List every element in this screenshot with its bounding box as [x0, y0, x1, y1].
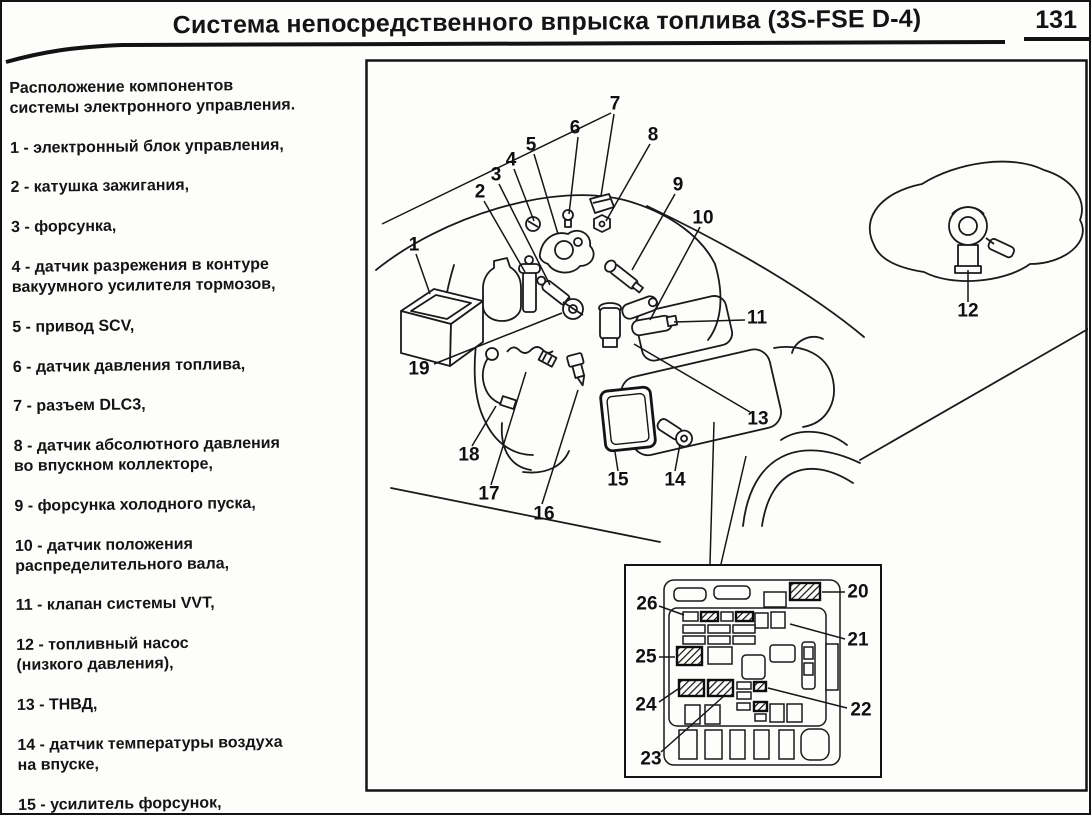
- callout-23: 23: [640, 749, 661, 770]
- relay-24-hatched: [679, 680, 704, 696]
- legend-item-3: 3 - форсунка,: [11, 214, 363, 238]
- callout-16: 16: [533, 504, 554, 525]
- legend-item-5: 5 - привод SCV,: [12, 313, 364, 337]
- legend-item-7: 7 - разъем DLC3,: [13, 393, 365, 417]
- callout-21: 21: [847, 630, 869, 651]
- scv-actuator-icon: [540, 231, 594, 273]
- fuse-26-target: [701, 612, 718, 621]
- legend-item-9: 9 - форсунка холодного пуска,: [14, 493, 366, 517]
- car-body-outline: [743, 329, 1088, 526]
- o2-sensor-icon: [507, 347, 557, 367]
- callout-2: 2: [475, 182, 486, 203]
- legend-item-6: 6 - датчик давления топлива,: [13, 353, 365, 377]
- legend-heading: Расположение компонентов системы электро…: [9, 75, 361, 119]
- fuse-box: [664, 580, 840, 765]
- manual-page: Система непосредственного впрыска топлив…: [0, 0, 1091, 815]
- callout-18: 18: [458, 445, 479, 466]
- legend-item-14: 14 - датчик температуры воздуха на впуск…: [17, 731, 369, 775]
- callout-15: 15: [607, 470, 629, 491]
- coolant-temp-sensor-icon: [567, 353, 590, 388]
- page-number: 131: [1035, 6, 1077, 35]
- fuel-pressure-sensor-icon: [563, 210, 573, 227]
- callout-12: 12: [957, 301, 978, 322]
- callout-11: 11: [747, 308, 768, 329]
- callout-8: 8: [648, 125, 659, 146]
- relay-20-hatched: [790, 583, 820, 600]
- callout-25: 25: [635, 647, 657, 668]
- callout-7: 7: [610, 94, 621, 115]
- callout-3: 3: [491, 165, 502, 186]
- callout-1: 1: [409, 235, 420, 256]
- fuse-21-target: [755, 613, 768, 628]
- callout-17: 17: [478, 484, 499, 505]
- legend-item-8: 8 - датчик абсолютного давления во впуск…: [14, 433, 366, 477]
- inset-funnel: [710, 422, 746, 564]
- cold-start-injector-icon: [603, 258, 645, 295]
- legend-item-12: 12 - топливный насос (низкого давления),: [16, 632, 368, 676]
- legend-item-11: 11 - клапан системы VVT,: [16, 592, 368, 616]
- fuse-box-inset: [625, 565, 881, 777]
- ecu-box: [401, 289, 483, 366]
- relay-23-hatched: [708, 680, 733, 696]
- dlc3-connector-icon: [590, 194, 614, 213]
- legend-item-15: 15 - усилитель форсунок,: [18, 791, 370, 815]
- callout-5: 5: [526, 135, 537, 156]
- callout-22: 22: [850, 700, 871, 721]
- component-location-diagram: 1 2 3 4 5 6 7 8 9 10 11 12 13 14 15 16 1…: [365, 59, 1088, 792]
- legend-item-2: 2 - катушка зажигания,: [10, 174, 362, 198]
- callout-4: 4: [506, 150, 517, 171]
- callout-24: 24: [635, 695, 657, 716]
- callout-20: 20: [847, 582, 868, 603]
- legend-item-4: 4 - датчик разрежения в контуре вакуумно…: [11, 254, 363, 298]
- relay-25-hatched: [677, 647, 702, 665]
- callout-13: 13: [747, 409, 768, 430]
- callout-6: 6: [570, 118, 581, 139]
- hp-pump-cluster: [599, 303, 621, 347]
- fuel-pump-icon: [949, 207, 1015, 273]
- callout-10: 10: [692, 208, 713, 229]
- crank-sensor-icon: [483, 348, 516, 409]
- knock-sensor-icon: [563, 299, 583, 319]
- callout-9: 9: [673, 175, 684, 196]
- iat-sensor-icon: [655, 415, 696, 449]
- callout-14: 14: [664, 470, 686, 491]
- legend-item-10: 10 - датчик положения распределительного…: [15, 532, 367, 576]
- callout-26: 26: [636, 594, 657, 615]
- diagram-canvas: 1 2 3 4 5 6 7 8 9 10 11 12 13 14 15 16 1…: [365, 59, 1088, 792]
- legend-item-1: 1 - электронный блок управления,: [10, 134, 362, 158]
- fuse-22-hatched: [754, 682, 766, 691]
- legend-item-13: 13 - ТНВД,: [17, 692, 369, 716]
- oil-reservoir: [483, 258, 521, 321]
- injector-driver-icon: [600, 387, 656, 452]
- page-title: Система непосредственного впрыска топлив…: [82, 4, 1012, 41]
- ignition-coil-icon: [519, 256, 540, 312]
- legend: Расположение компонентов системы электро…: [9, 55, 377, 815]
- callout-19: 19: [408, 359, 429, 380]
